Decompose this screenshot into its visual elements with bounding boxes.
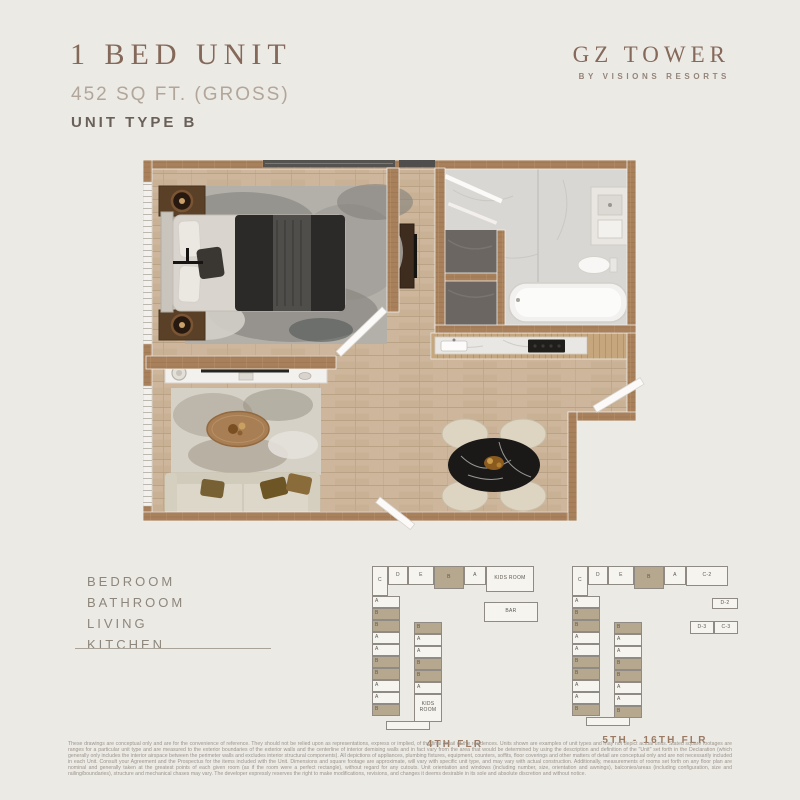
kitchen: [431, 333, 629, 359]
room-legend: BEDROOM BATHROOM LIVING KITCHEN: [87, 571, 185, 655]
keyplan-unit-b: B: [634, 566, 664, 589]
brand-logo: GZ TOWER BY VISIONS RESORTS: [573, 42, 730, 81]
legend-divider: [75, 648, 271, 649]
keyplan-unit-b: B: [414, 670, 442, 682]
keyplan-unit-b: B: [372, 656, 400, 668]
keyplan-5th-16th-floor: CDEBAC-2ABBAABBAABBAABBAABD-2D-3C-35TH -…: [572, 566, 738, 746]
keyplan-unit-b: B: [434, 566, 464, 589]
keyplan-unit-a: A: [614, 694, 642, 706]
keyplan-unit-a: A: [414, 634, 442, 646]
keyplan-unit-a: A: [372, 692, 400, 704]
toilet: [578, 257, 617, 274]
keyplan-unit-d: D: [588, 566, 608, 585]
keyplan-unit-e: E: [408, 566, 434, 585]
keyplan-unit-b: B: [614, 706, 642, 718]
coffee-table: [207, 412, 269, 447]
keyplan-unit-c-3: C-3: [714, 621, 738, 634]
keyplan-unit-a: A: [372, 644, 400, 656]
floor-plan: [143, 160, 658, 545]
keyplan-unit-d: D: [388, 566, 408, 585]
legend-item: LIVING: [87, 613, 185, 634]
keyplan-unit-a: A: [572, 692, 600, 704]
keyplan-unit-b: B: [372, 608, 400, 620]
legal-disclaimer: These drawings are conceptual only and a…: [68, 741, 732, 777]
bathroom: [443, 168, 629, 328]
keyplan-unit-kids-room: KIDS ROOM: [414, 694, 442, 722]
keyplan-unit-b: B: [572, 668, 600, 680]
keyplan-4th-floor: CDEBAKIDS ROOMABBAABBAABBAABBAKIDS ROOMB…: [372, 566, 538, 750]
vanity-sink: [591, 187, 629, 245]
keyplan-unit-kids-room: KIDS ROOM: [486, 566, 534, 592]
keyplan-unit-b: B: [572, 608, 600, 620]
keyplan-unit-b: B: [372, 620, 400, 632]
keyplan-unit-d-2: D-2: [712, 598, 738, 609]
brand-tagline: BY VISIONS RESORTS: [573, 72, 730, 81]
keyplan-unit-a: A: [664, 566, 686, 585]
keyplan-unit-a: A: [614, 682, 642, 694]
keyplan-unit-d-3: D-3: [690, 621, 714, 634]
keyplan-unit-b: B: [372, 704, 400, 716]
keyplan-unit-b: B: [572, 656, 600, 668]
page: 1 BED UNIT 452 SQ FT. (GROSS) UNIT TYPE …: [0, 0, 800, 800]
keyplan-unit-a: A: [572, 632, 600, 644]
keyplan-unit-a: A: [372, 680, 400, 692]
keyplan-unit-b: B: [614, 622, 642, 634]
keyplan-unit-a: A: [414, 646, 442, 658]
keyplan-unit-b: B: [572, 704, 600, 716]
keyplan-unit-b: B: [572, 620, 600, 632]
legend-item: BATHROOM: [87, 592, 185, 613]
keyplan-unit-a: A: [372, 632, 400, 644]
unit-type-label: UNIT TYPE B: [71, 114, 197, 131]
keyplan-unit-a: A: [572, 596, 600, 608]
keyplan-unit-a: A: [614, 646, 642, 658]
unit-sqft: 452 SQ FT. (GROSS): [71, 84, 290, 106]
bathtub: [509, 283, 627, 322]
keyplan-core-stub: [386, 721, 430, 730]
keyplan-unit-b: B: [414, 622, 442, 634]
cooktop: [528, 340, 565, 353]
keyplan-unit-a: A: [372, 596, 400, 608]
keyplan-unit-c-2: C-2: [686, 566, 728, 586]
keyplan-unit-b: B: [614, 670, 642, 682]
keyplan-unit-a: A: [614, 634, 642, 646]
keyplan-unit-a: A: [414, 682, 442, 694]
keyplan-unit-bar: BAR: [484, 602, 538, 622]
keyplan-unit-a: A: [572, 680, 600, 692]
keyplan-unit-b: B: [614, 658, 642, 670]
keyplan-unit-b: B: [414, 658, 442, 670]
nightstand: [159, 310, 205, 340]
keyplan-core-stub: [586, 717, 630, 726]
window: [143, 182, 152, 506]
keyplan-unit-c: C: [372, 566, 388, 596]
keyplan-unit-b: B: [372, 668, 400, 680]
legend-item: KITCHEN: [87, 634, 185, 655]
keyplan-unit-a: A: [464, 566, 486, 585]
page-title: 1 BED UNIT: [70, 38, 292, 72]
keyplan-unit-e: E: [608, 566, 634, 585]
sofa: [165, 473, 320, 515]
keyplan-unit-a: A: [572, 644, 600, 656]
dining-table: [448, 438, 540, 492]
bed: [161, 212, 345, 312]
legend-item: BEDROOM: [87, 571, 185, 592]
keyplan-unit-c: C: [572, 566, 588, 596]
brand-name: GZ TOWER: [573, 42, 730, 68]
